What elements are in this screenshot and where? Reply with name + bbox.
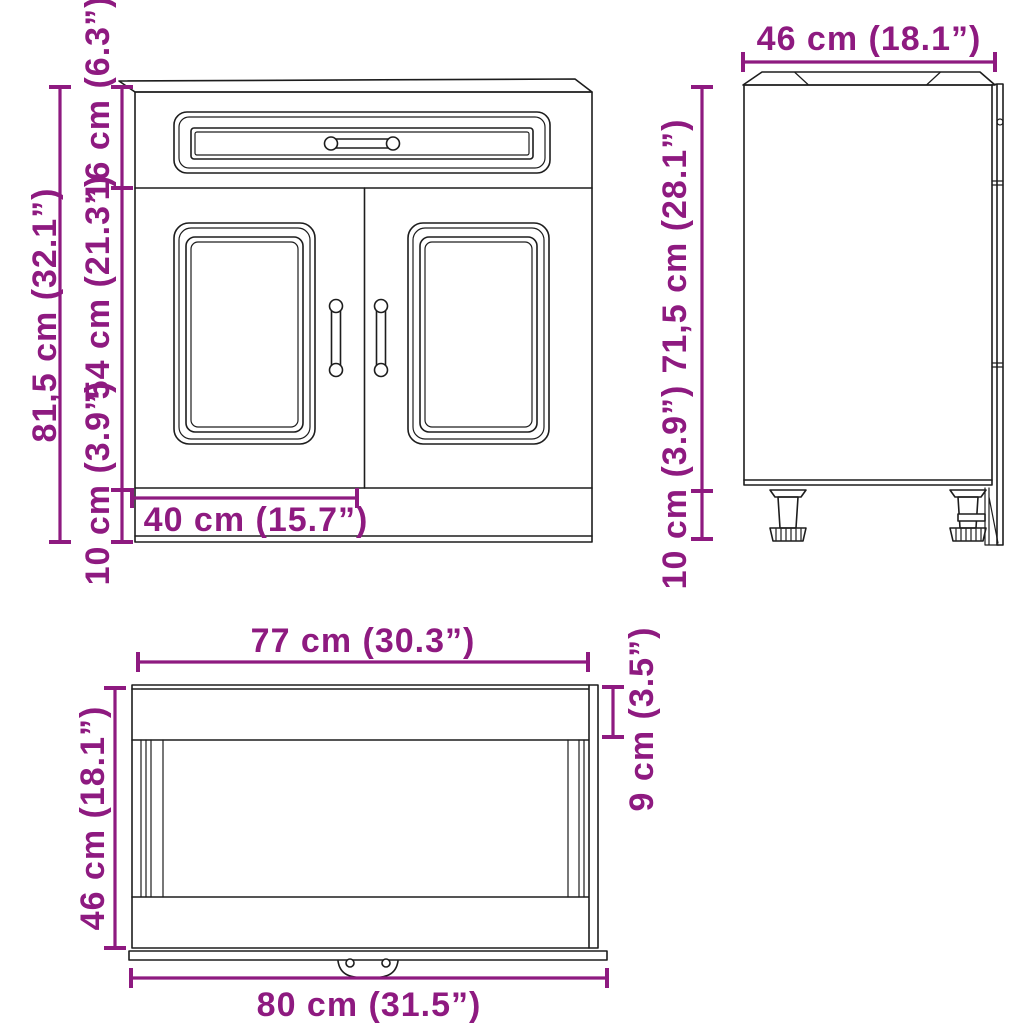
- side-dimension-ticks: [691, 52, 995, 539]
- side-slab-notches: [795, 73, 940, 85]
- top-view: 77 cm (30.3”) 9 cm (3.5”) 46 cm (18.1”) …: [74, 622, 661, 1024]
- top-body-outline: [132, 685, 598, 948]
- top-handle-prong-right: [382, 959, 390, 967]
- front-left-door-panel-outer: [174, 223, 315, 444]
- top-dimension-lines: [115, 662, 613, 978]
- side-front-foot-plate: [950, 490, 986, 497]
- top-front-edge-slab: [129, 951, 607, 960]
- top-inner-width-label: 77 cm (30.3”): [251, 622, 476, 660]
- front-view-dimensions: 81,5 cm (32.1”) 16 cm (6.3”) 54 cm (21.3…: [26, 0, 368, 585]
- front-leg-height-label: 10 cm (3.9”): [79, 381, 117, 586]
- front-view: 81,5 cm (32.1”) 16 cm (6.3”) 54 cm (21.3…: [26, 0, 592, 585]
- side-depth-label: 46 cm (18.1”): [757, 20, 982, 58]
- front-right-door-panel-inset-inner-line: [425, 242, 532, 427]
- front-right-door-panel-inset: [420, 237, 537, 432]
- side-door-knob-detail: [997, 119, 1003, 125]
- side-body-height-label: 71,5 cm (28.1”): [656, 118, 694, 373]
- front-countertop-slab: [119, 79, 592, 92]
- side-view-drawing: [743, 72, 1003, 545]
- side-front-foot-column: [958, 497, 978, 528]
- front-horizontal-divisions: [135, 188, 592, 536]
- front-drawer-handle-knob-right: [387, 137, 400, 150]
- top-view-drawing: [129, 685, 607, 978]
- front-left-door-panel-outer-inner-line: [179, 228, 310, 439]
- top-inner-structure-lines: [132, 685, 589, 948]
- side-leg-height-label: 10 cm (3.9”): [656, 385, 694, 590]
- top-dimension-ticks: [104, 652, 624, 988]
- side-view: 46 cm (18.1”) 71,5 cm (28.1”) 10 cm (3.9…: [656, 20, 1003, 589]
- side-front-foot-knurling: [956, 529, 981, 540]
- side-carcass-outline: [744, 85, 992, 485]
- side-door-front-edge: [992, 84, 1003, 545]
- dimension-diagram-svg: 81,5 cm (32.1”) 16 cm (6.3”) 54 cm (21.3…: [0, 0, 1024, 1024]
- top-view-dimensions: 77 cm (30.3”) 9 cm (3.5”) 46 cm (18.1”) …: [74, 622, 661, 1024]
- front-right-door-handle: [377, 306, 386, 370]
- front-right-door-handle-knob-bottom: [375, 364, 388, 377]
- front-view-drawing: [119, 79, 592, 542]
- front-total-height-label: 81,5 cm (32.1”): [26, 187, 64, 442]
- front-left-door-handle-knob-top: [330, 300, 343, 313]
- side-rear-foot-plate: [770, 490, 806, 497]
- front-right-door-panel-outer: [408, 223, 549, 444]
- front-left-door-handle-knob-bottom: [330, 364, 343, 377]
- front-door-height-label: 54 cm (21.3”): [79, 175, 117, 400]
- top-total-width-label: 80 cm (31.5”): [257, 986, 482, 1024]
- side-view-dimensions: 46 cm (18.1”) 71,5 cm (28.1”) 10 cm (3.9…: [656, 20, 995, 589]
- front-right-door-panel-outer-inner-line: [413, 228, 544, 439]
- top-side-panel-stripes: [141, 740, 584, 897]
- front-left-door-handle: [332, 306, 341, 370]
- front-top-section-height-label: 16 cm (6.3”): [79, 0, 117, 200]
- side-rear-foot-knurling: [776, 529, 801, 540]
- cabinet-dimension-diagram: 81,5 cm (32.1”) 16 cm (6.3”) 54 cm (21.3…: [0, 0, 1024, 1024]
- front-right-door-handle-knob-top: [375, 300, 388, 313]
- top-handle-prong-left: [346, 959, 354, 967]
- front-drawer-handle-knob-left: [325, 137, 338, 150]
- top-front-clearance-label: 9 cm (3.5”): [623, 627, 661, 812]
- side-countertop-slab: [743, 72, 995, 85]
- top-depth-label: 46 cm (18.1”): [74, 706, 112, 931]
- front-door-width-label: 40 cm (15.7”): [144, 501, 369, 539]
- front-left-door-panel-inset-inner-line: [191, 242, 298, 427]
- front-left-door-panel-inset: [186, 237, 303, 432]
- side-foot-adjustment-screw: [958, 514, 985, 521]
- side-rear-foot: [770, 490, 806, 541]
- side-dimension-lines: [702, 62, 995, 539]
- side-rear-foot-column: [778, 497, 798, 528]
